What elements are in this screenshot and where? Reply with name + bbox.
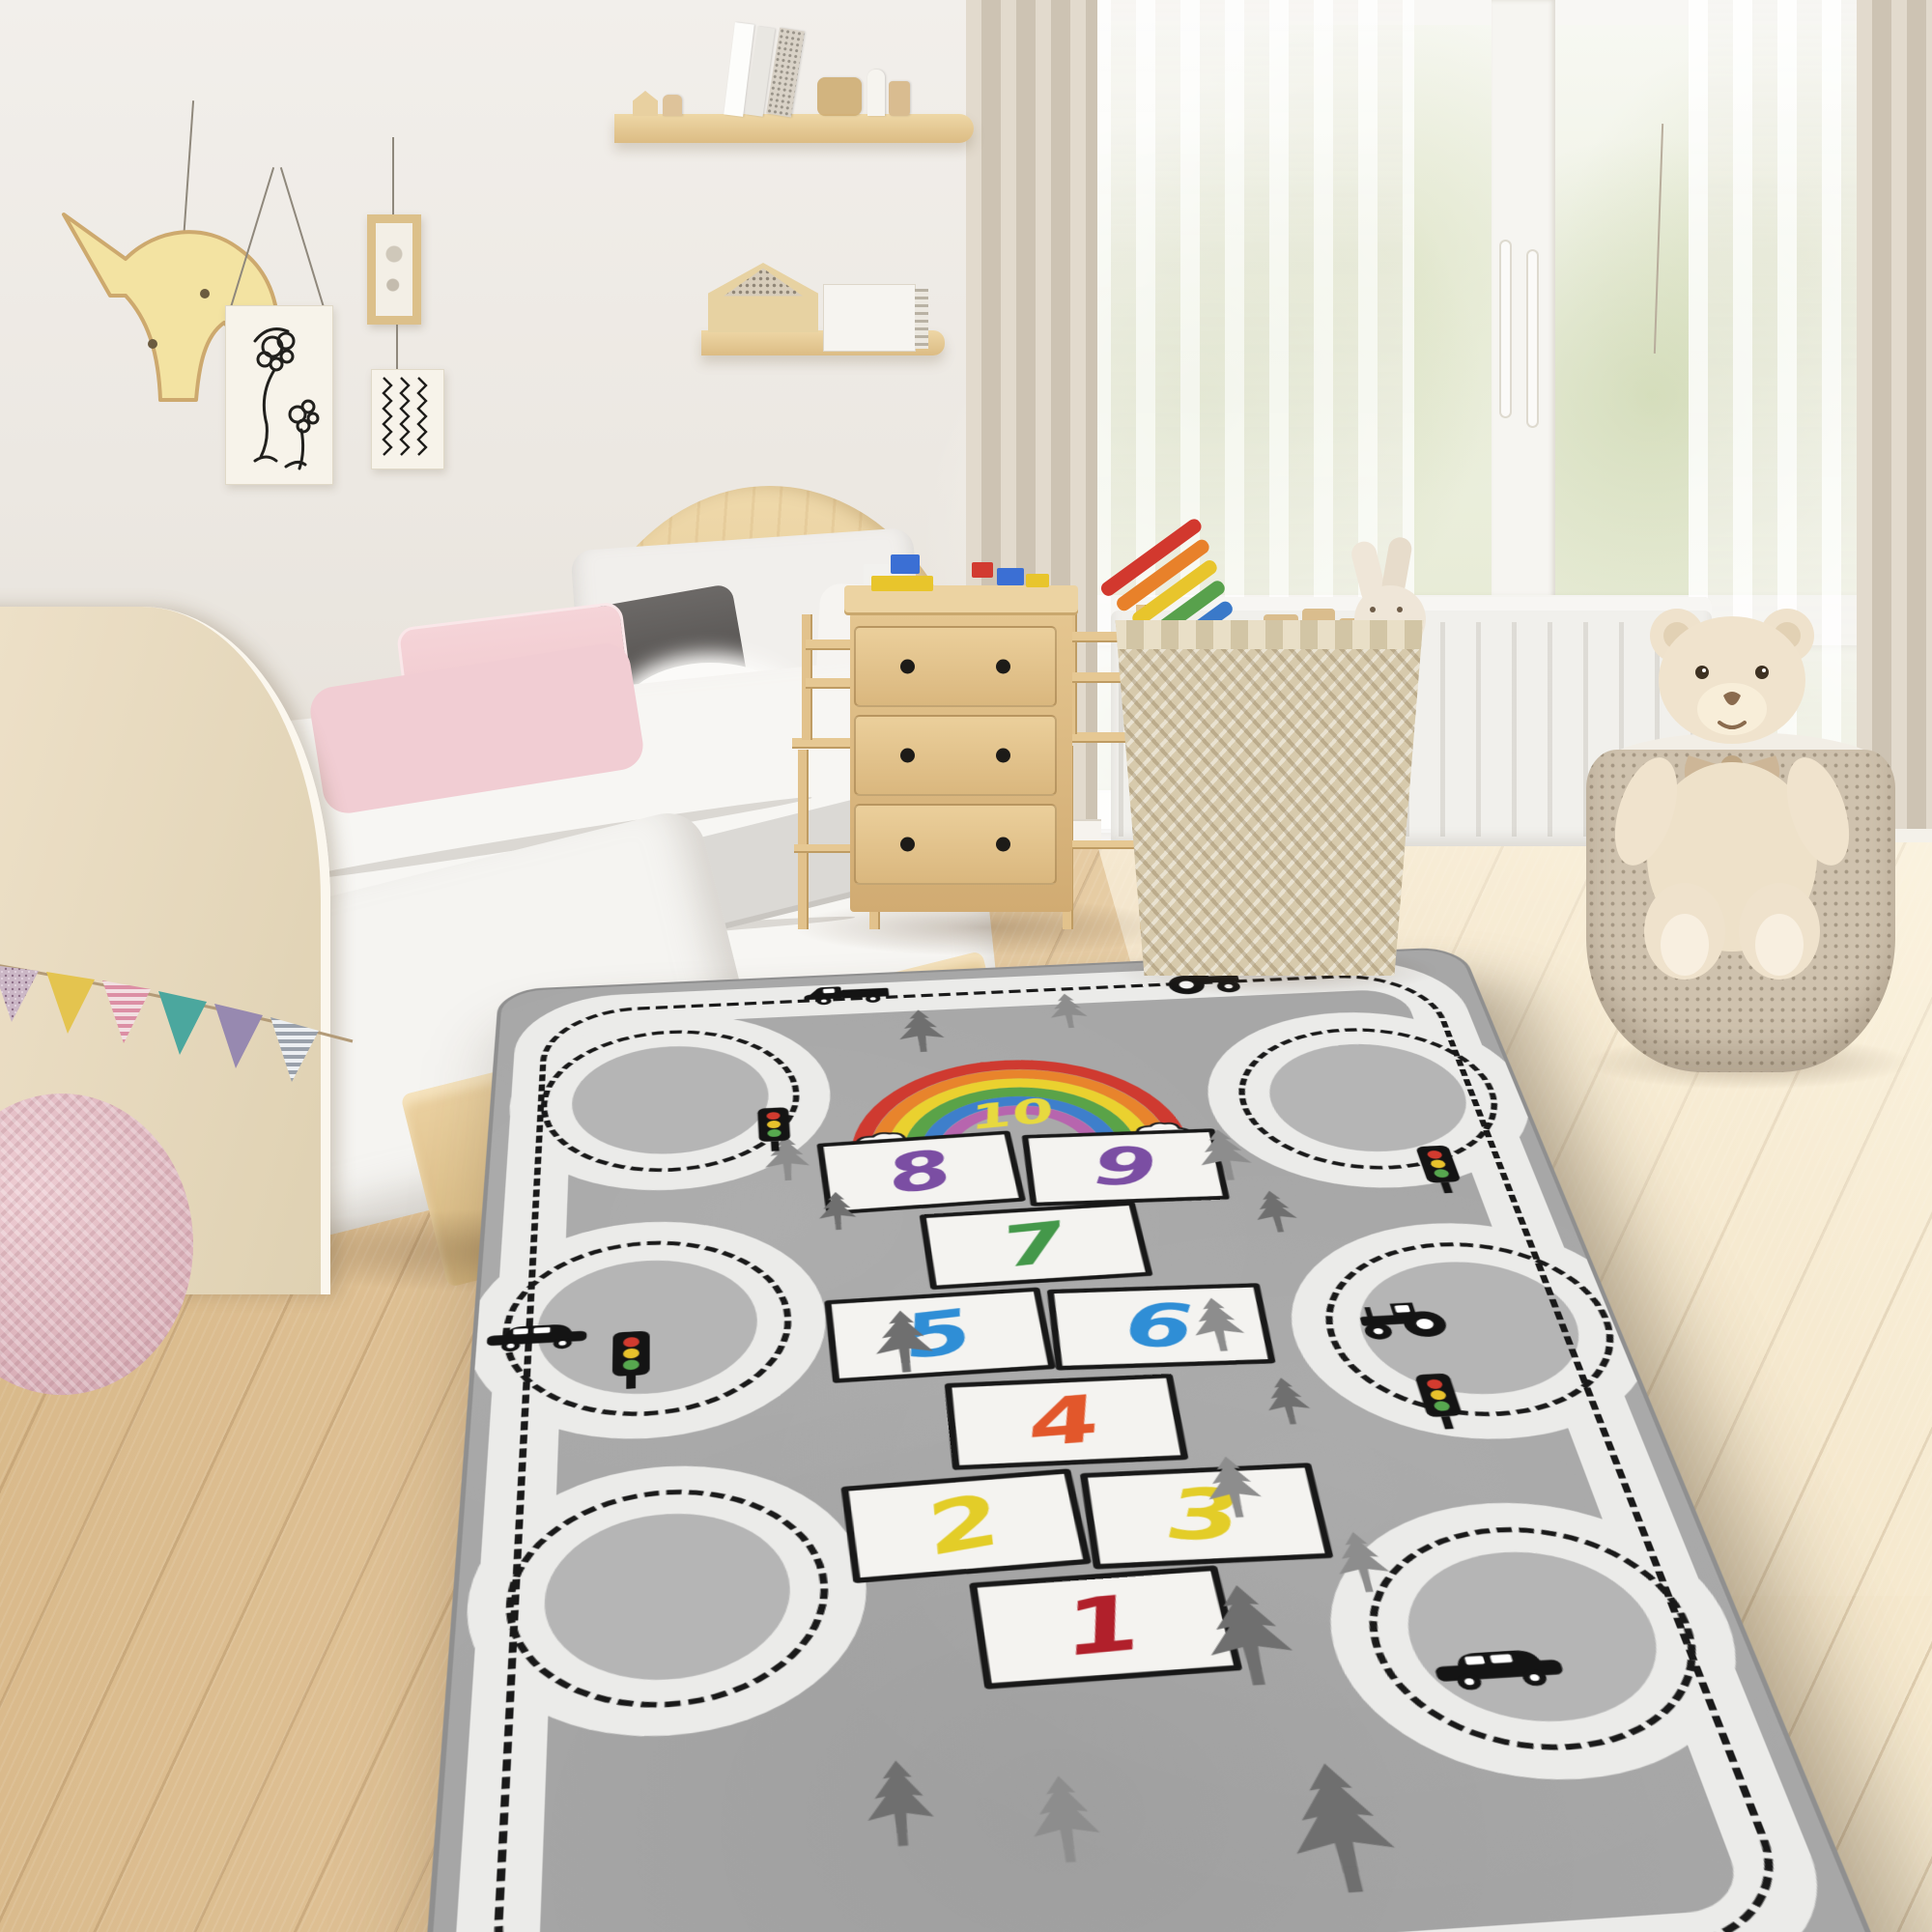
hopscotch-square-7: 7	[920, 1202, 1153, 1290]
drawer	[854, 626, 1057, 707]
lego-block	[871, 576, 933, 591]
mini-wood-frame	[367, 214, 421, 325]
toy-basket	[1109, 620, 1430, 976]
window-handle-icon	[1499, 240, 1512, 418]
hopscotch-square-2: 2	[840, 1468, 1092, 1583]
drawer	[854, 804, 1057, 885]
frame-string	[392, 137, 394, 218]
lego-block	[891, 554, 920, 574]
lego-block	[1026, 574, 1049, 587]
hopscotch-square-4: 4	[945, 1374, 1189, 1470]
traffic-light-icon	[605, 1327, 657, 1393]
jeep-icon	[1422, 1639, 1577, 1697]
flower-drawing-card	[225, 305, 333, 485]
zigzag-card	[371, 369, 444, 469]
car-icon	[480, 1318, 592, 1357]
lego-block	[997, 568, 1024, 585]
traffic-light-icon	[752, 1105, 797, 1154]
zigzag-card-string	[396, 325, 398, 371]
teddy-bear	[1592, 572, 1872, 987]
white-box-decor	[823, 284, 916, 352]
shelf-upper-items	[628, 19, 966, 116]
wall-shelf-upper	[614, 114, 974, 143]
dresser	[844, 585, 1078, 935]
kids-bedroom-scene: 10 8 9 7 5 6 4 2	[0, 0, 1932, 1932]
window-handle-icon	[1526, 249, 1539, 428]
lego-block	[972, 562, 993, 578]
tractor-icon	[1343, 1293, 1461, 1344]
hopscotch-number-10: 10	[965, 1091, 1060, 1137]
drawer	[854, 715, 1057, 796]
truck-icon	[796, 980, 896, 1009]
